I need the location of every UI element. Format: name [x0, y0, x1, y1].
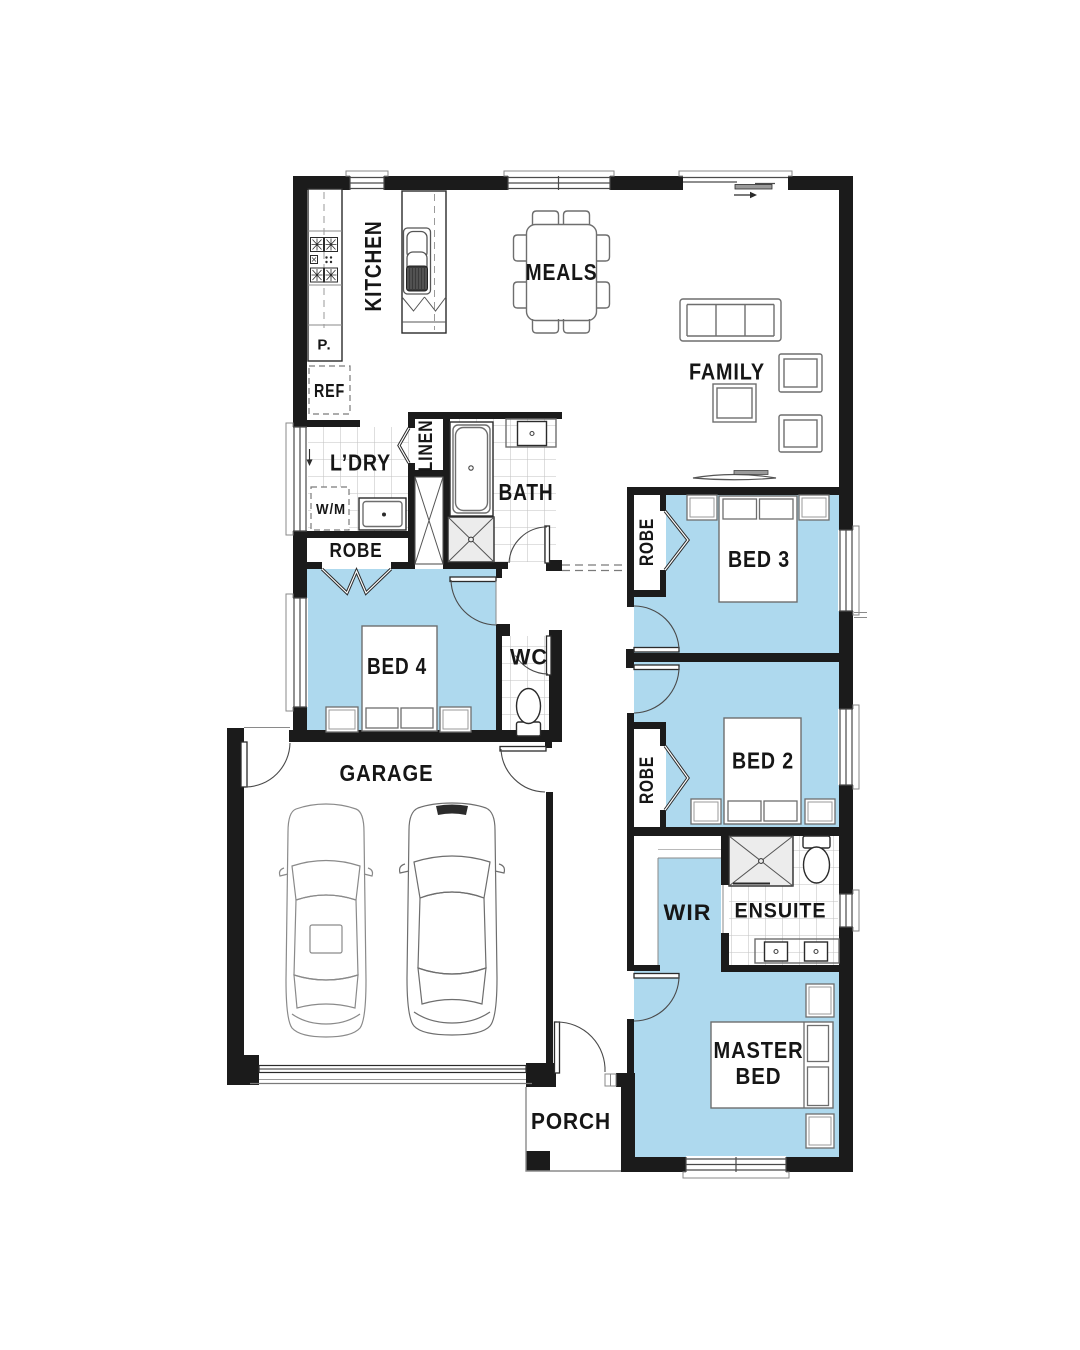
svg-text:L’DRY: L’DRY [330, 450, 391, 476]
svg-text:WIR: WIR [664, 900, 712, 925]
svg-text:KITCHEN: KITCHEN [360, 221, 386, 312]
svg-text:MEALS: MEALS [526, 259, 598, 285]
svg-text:MASTER: MASTER [714, 1037, 804, 1063]
svg-text:BED 3: BED 3 [728, 546, 790, 572]
svg-text:ROBE: ROBE [330, 540, 383, 562]
svg-text:BED 2: BED 2 [732, 748, 794, 774]
svg-text:GARAGE: GARAGE [340, 760, 434, 786]
svg-text:REF: REF [314, 381, 345, 401]
svg-text:ROBE: ROBE [637, 518, 658, 566]
svg-text:BATH: BATH [499, 479, 554, 505]
svg-text:LINEN: LINEN [416, 420, 437, 472]
svg-text:BED: BED [736, 1063, 782, 1089]
svg-text:ENSUITE: ENSUITE [735, 900, 827, 923]
svg-text:W/M: W/M [316, 501, 346, 518]
svg-text:ROBE: ROBE [637, 756, 658, 804]
svg-text:PORCH: PORCH [531, 1108, 611, 1134]
svg-text:P.: P. [317, 337, 331, 354]
svg-text:BED 4: BED 4 [367, 653, 427, 679]
svg-text:WC: WC [510, 645, 548, 670]
svg-text:FAMILY: FAMILY [689, 359, 765, 385]
